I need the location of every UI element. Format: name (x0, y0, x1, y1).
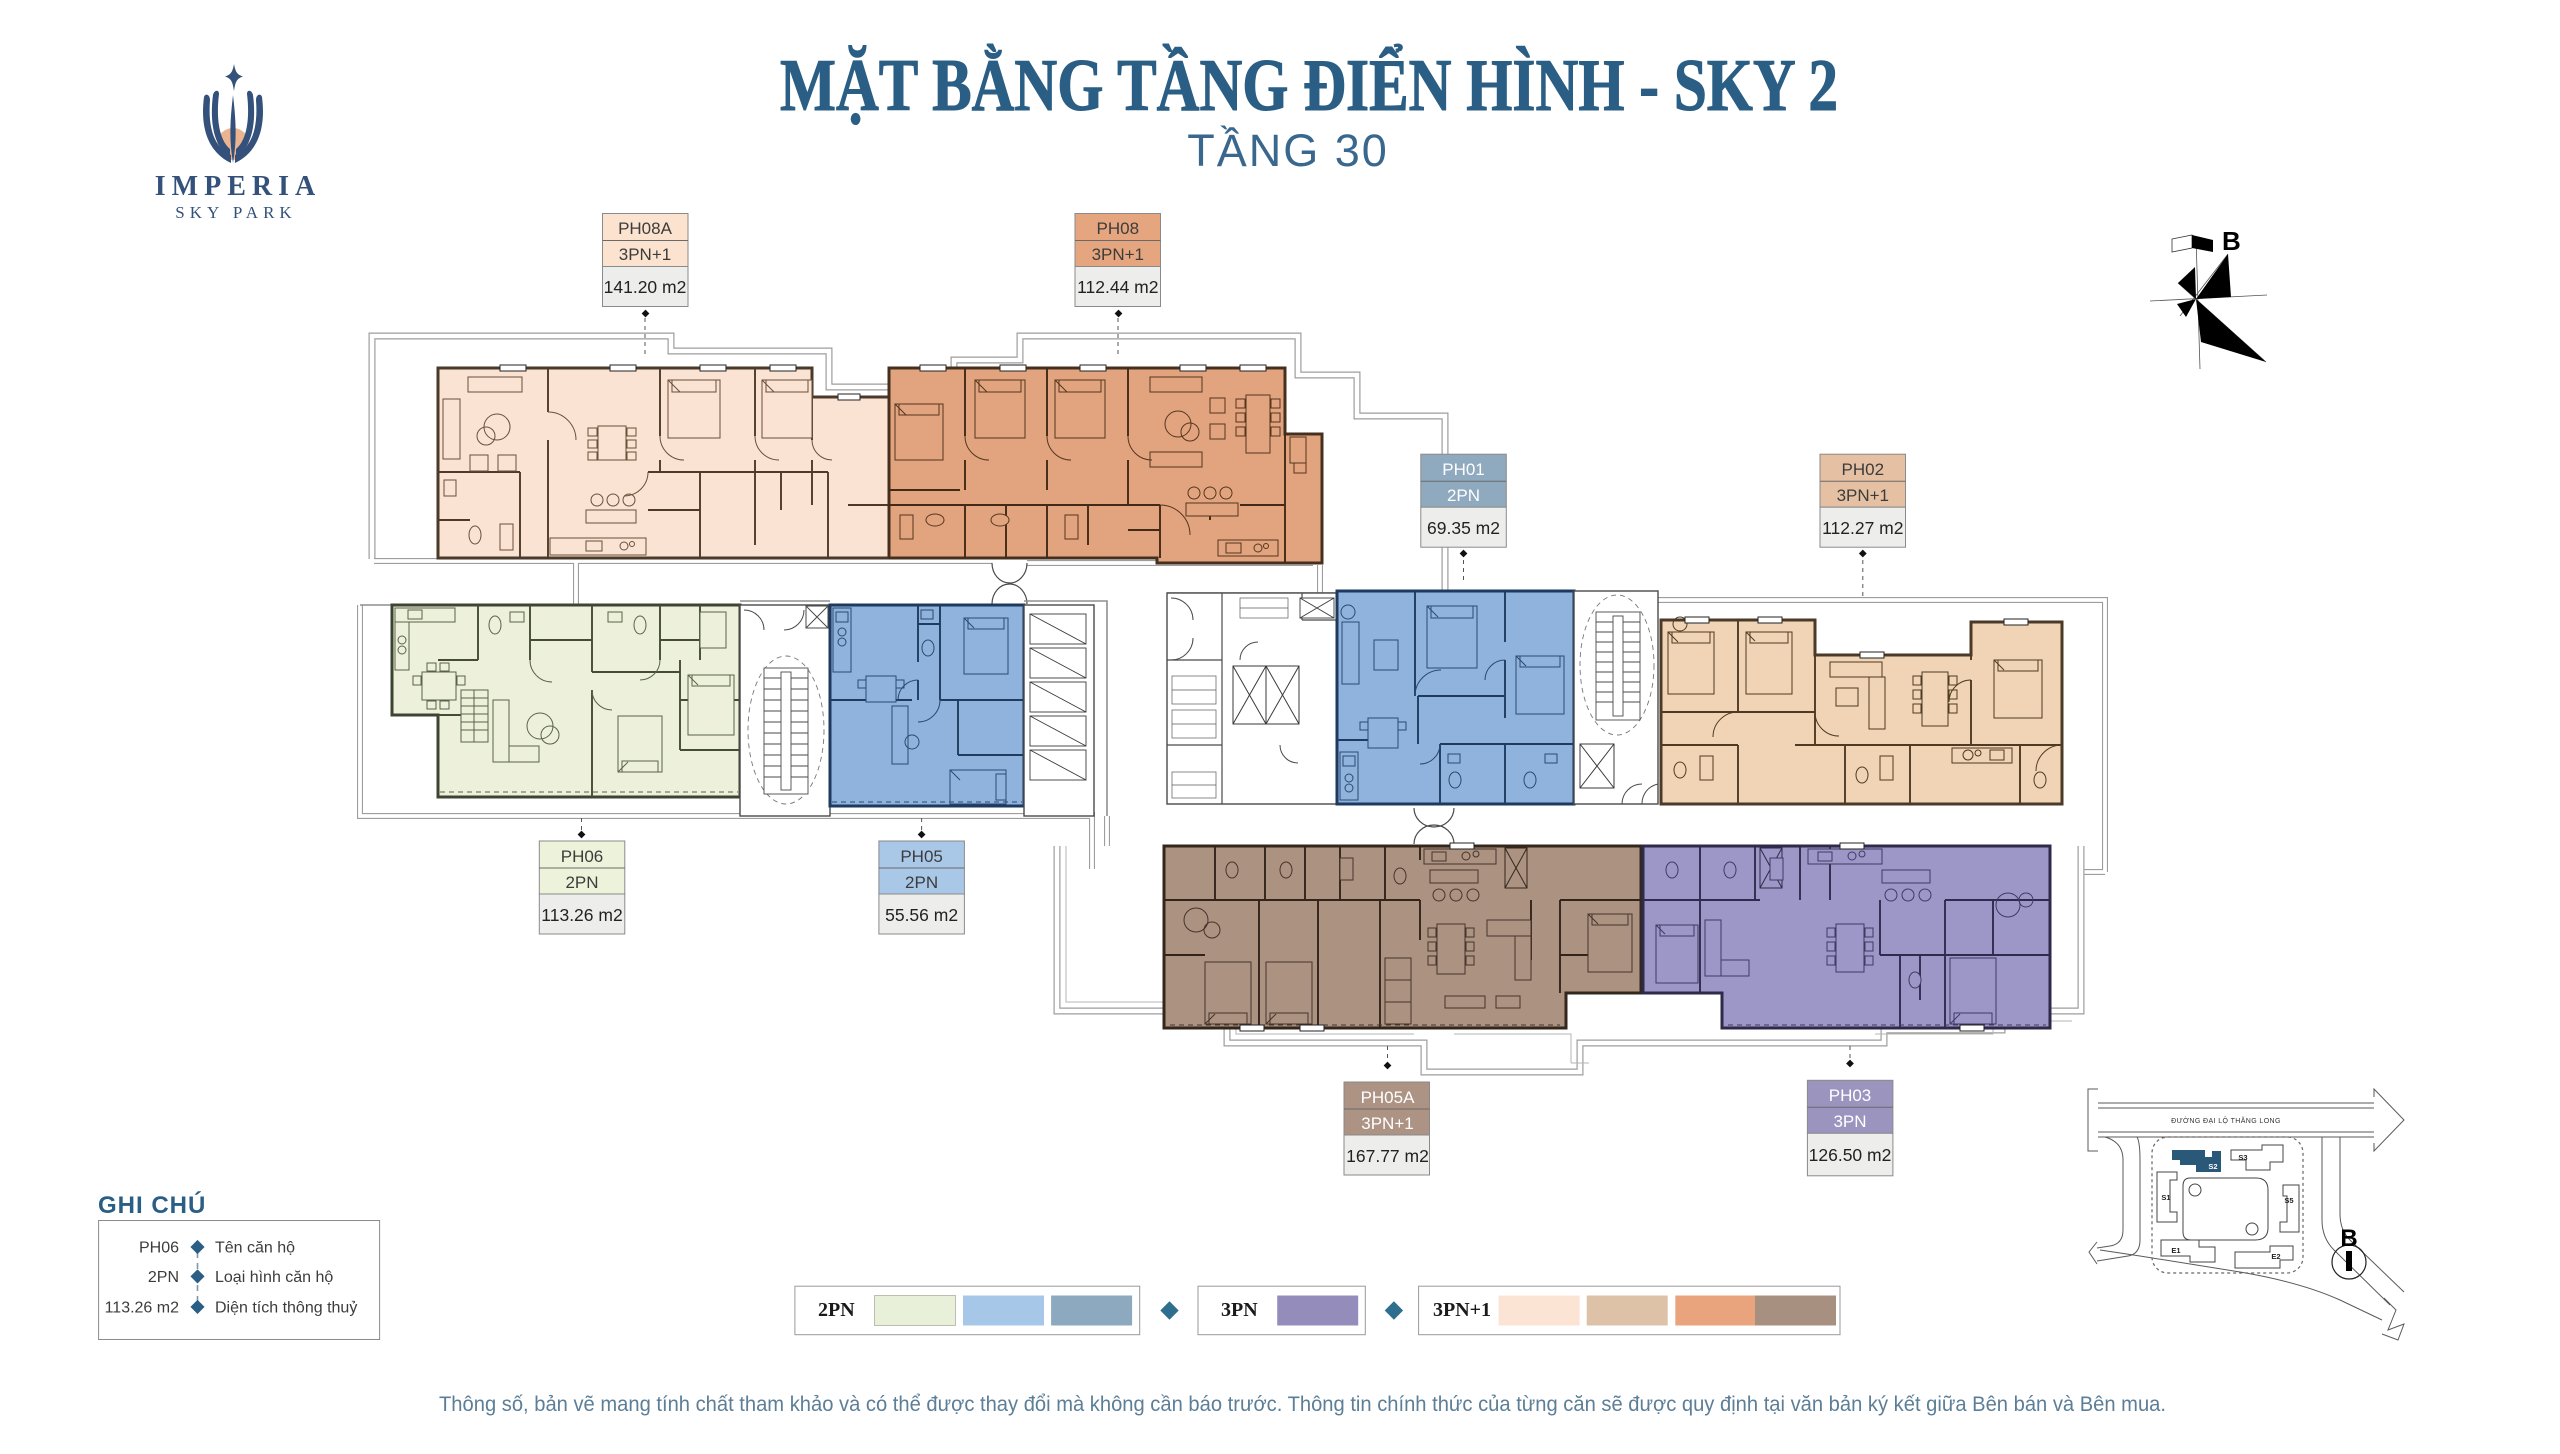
svg-text:2PN: 2PN (565, 873, 598, 892)
svg-text:PH05A: PH05A (1361, 1088, 1416, 1107)
svg-text:3PN: 3PN (1833, 1112, 1866, 1131)
svg-text:B: B (2222, 226, 2241, 256)
svg-text:IMPERIA: IMPERIA (155, 171, 321, 202)
svg-text:S3: S3 (2238, 1153, 2247, 1162)
svg-text:E1: E1 (2171, 1246, 2180, 1255)
svg-text:2PN: 2PN (905, 873, 938, 892)
svg-text:3PN: 3PN (1221, 1299, 1258, 1321)
svg-text:113.26 m2: 113.26 m2 (541, 905, 622, 925)
svg-text:3PN+1: 3PN+1 (619, 245, 671, 264)
svg-text:Tên căn hộ: Tên căn hộ (215, 1240, 295, 1257)
svg-text:GHI CHÚ: GHI CHÚ (98, 1191, 206, 1219)
svg-text:55.56 m2: 55.56 m2 (885, 905, 958, 925)
svg-text:Diện tích thông thuỷ: Diện tích thông thuỷ (215, 1299, 357, 1316)
svg-text:S1: S1 (2161, 1193, 2170, 1202)
svg-text:Loại hình căn hộ: Loại hình căn hộ (215, 1269, 333, 1286)
svg-text:112.27 m2: 112.27 m2 (1822, 518, 1903, 538)
svg-text:3PN+1: 3PN+1 (1361, 1114, 1413, 1133)
svg-text:S2: S2 (2208, 1162, 2217, 1171)
svg-text:SKY PARK: SKY PARK (175, 203, 296, 222)
svg-text:2PN: 2PN (1447, 486, 1480, 505)
svg-text:167.77 m2: 167.77 m2 (1346, 1146, 1429, 1166)
svg-text:Thông số, bản vẽ mang tính chấ: Thông số, bản vẽ mang tính chất tham khả… (439, 1392, 2166, 1416)
svg-text:PH02: PH02 (1842, 460, 1885, 479)
svg-text:PH03: PH03 (1829, 1086, 1872, 1105)
svg-text:S5: S5 (2284, 1196, 2293, 1205)
svg-text:PH05: PH05 (900, 847, 943, 866)
svg-text:69.35 m2: 69.35 m2 (1427, 518, 1500, 538)
svg-text:B: B (2340, 1225, 2357, 1252)
svg-text:PH06: PH06 (561, 847, 604, 866)
svg-text:2PN: 2PN (148, 1269, 179, 1286)
svg-text:126.50 m2: 126.50 m2 (1809, 1145, 1892, 1165)
svg-text:E2: E2 (2271, 1252, 2280, 1261)
svg-text:112.44 m2: 112.44 m2 (1077, 277, 1158, 297)
svg-text:MẶT BẰNG TẦNG ĐIỂN HÌNH - SKY: MẶT BẰNG TẦNG ĐIỂN HÌNH - SKY 2 (780, 44, 1838, 127)
svg-text:PH08A: PH08A (618, 219, 673, 238)
svg-text:TẦNG 30: TẦNG 30 (1187, 125, 1389, 176)
svg-text:PH08: PH08 (1097, 219, 1140, 238)
svg-text:PH06: PH06 (139, 1240, 179, 1257)
svg-text:3PN+1: 3PN+1 (1433, 1299, 1491, 1321)
svg-text:ĐƯỜNG ĐẠI LỘ THĂNG LONG: ĐƯỜNG ĐẠI LỘ THĂNG LONG (2171, 1116, 2281, 1125)
svg-text:2PN: 2PN (818, 1299, 855, 1321)
svg-text:113.26 m2: 113.26 m2 (105, 1299, 180, 1316)
svg-text:3PN+1: 3PN+1 (1092, 245, 1144, 264)
svg-text:141.20 m2: 141.20 m2 (604, 277, 687, 297)
svg-text:PH01: PH01 (1442, 460, 1485, 479)
svg-text:3PN+1: 3PN+1 (1837, 486, 1889, 505)
